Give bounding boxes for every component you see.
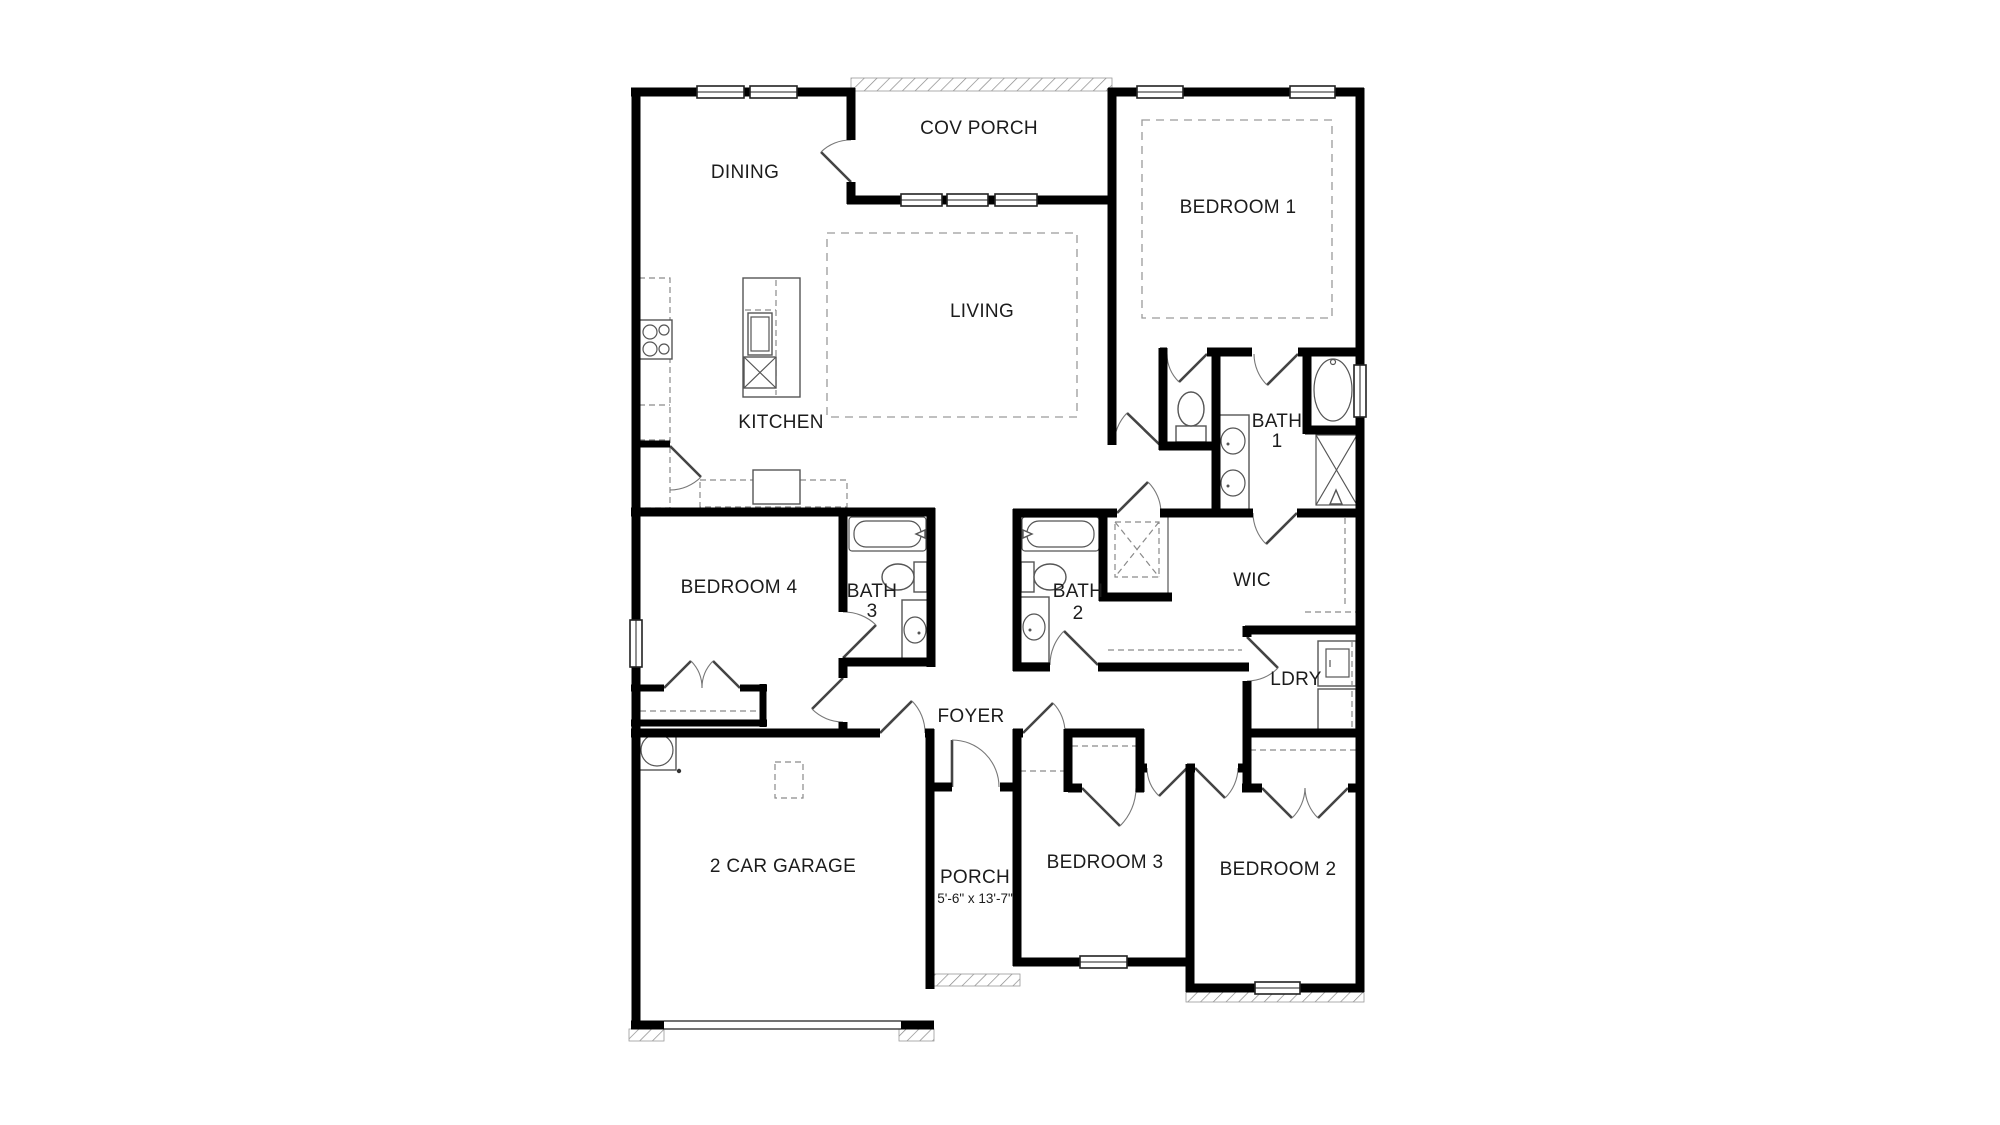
wall-bedroom3-closet <box>1068 729 1144 792</box>
room-label-dining: DINING <box>711 162 779 183</box>
window-bedroom4 <box>630 620 642 667</box>
sink-drain <box>1029 629 1032 632</box>
window-living-3 <box>995 194 1037 206</box>
room-label-bath3-line1: BATH <box>847 581 897 602</box>
door-water-closet <box>1167 354 1207 382</box>
door-pantry <box>670 446 701 490</box>
porch-dimensions: 5'-6" x 13'-7" <box>937 891 1013 906</box>
door-wic-shower <box>1117 482 1161 513</box>
room-label-bedroom1: BEDROOM 1 <box>1180 197 1297 218</box>
shower-head-icon <box>1330 490 1342 504</box>
door-bedroom3-closet <box>1082 788 1136 826</box>
toilet-tank-icon <box>1021 562 1034 592</box>
bath1-tub-basin <box>1314 359 1352 421</box>
door-bedroom2 <box>1195 768 1238 798</box>
window-bath1 <box>1354 365 1366 417</box>
garage-fixtures <box>638 730 901 1029</box>
window-bedroom2 <box>1255 982 1300 994</box>
wall-bedroom4-closet <box>631 684 767 727</box>
toilet-tank-icon <box>1176 426 1206 442</box>
floor-plan-canvas: DINING COV PORCH BEDROOM 1 LIVING KITCHE… <box>0 0 2000 1125</box>
door-bedroom4 <box>812 678 843 722</box>
laundry-fixtures <box>1318 641 1356 732</box>
room-label-bedroom3: BEDROOM 3 <box>1047 852 1164 873</box>
front-porch-slab-hatch <box>928 974 1020 986</box>
tub-faucet-icon <box>1331 360 1336 365</box>
window-living-2 <box>947 194 988 206</box>
door-porch-to-dining <box>821 140 851 182</box>
sink-drain <box>1227 443 1230 446</box>
room-label-bath3-line2: 3 <box>867 601 878 622</box>
door-wic <box>1253 513 1297 544</box>
sink-drain <box>918 632 921 635</box>
window-living-1 <box>901 194 942 206</box>
door-garage-entry <box>880 701 925 733</box>
room-label-bath1-line2: 1 <box>1272 431 1283 452</box>
room-label-kitchen: KITCHEN <box>738 412 824 433</box>
shower-x <box>1115 522 1159 577</box>
room-label-living: LIVING <box>950 301 1014 322</box>
washer-icon <box>1318 641 1356 686</box>
floor-drain-icon <box>677 769 681 773</box>
room-label-bath2-line2: 2 <box>1073 603 1084 624</box>
door-bedroom3-second <box>1147 768 1187 796</box>
bath3-vanity <box>902 600 929 664</box>
kitchen-sink-south <box>753 470 800 504</box>
cov-porch-roof-edge-hatch <box>851 78 1112 91</box>
door-bedroom4-closet-double <box>664 661 740 688</box>
sink-drain <box>1227 485 1230 488</box>
dryer-icon <box>1318 689 1356 732</box>
wic-shower <box>1115 517 1168 593</box>
room-label-ldry: LDRY <box>1270 669 1322 690</box>
garage-door-stub-right-hatch <box>899 1029 934 1041</box>
room-label-bath2-line1: BATH <box>1053 581 1103 602</box>
garage-attic-access <box>775 762 803 798</box>
door-bedroom1-to-bath1 <box>1254 354 1298 385</box>
window-bedroom3 <box>1080 956 1127 968</box>
room-label-cov-porch: COV PORCH <box>920 118 1038 139</box>
door-bedroom2-closet-double <box>1262 788 1348 818</box>
window-dining-2 <box>750 86 797 98</box>
room-label-garage: 2 CAR GARAGE <box>710 856 856 877</box>
living-ceiling-dashed-rect <box>827 233 1077 417</box>
kitchen-fixtures <box>639 278 847 508</box>
door-bedroom3 <box>1023 703 1065 733</box>
room-label-bedroom2: BEDROOM 2 <box>1220 859 1337 880</box>
window-bedroom1-2 <box>1290 86 1335 98</box>
door-living-to-hall <box>1114 413 1160 445</box>
bedroom1-ceiling-dashed-rect <box>1142 120 1332 318</box>
room-label-porch: PORCH <box>940 867 1010 888</box>
room-label-bath1-line1: BATH <box>1252 411 1302 432</box>
room-label-bedroom4: BEDROOM 4 <box>681 577 798 598</box>
toilet-tank-icon <box>914 562 927 592</box>
kitchen-counter-west <box>639 278 670 508</box>
bath2-tub-basin <box>1027 521 1094 547</box>
room-label-wic: WIC <box>1233 570 1271 591</box>
bath1-tub <box>1308 352 1358 428</box>
toilet-icon <box>1178 392 1204 426</box>
door-front-entry <box>952 740 999 787</box>
window-dining-1 <box>697 86 744 98</box>
floor-plan-svg: DINING COV PORCH BEDROOM 1 LIVING KITCHE… <box>0 0 2000 1125</box>
garage-door-stub-left-hatch <box>629 1029 664 1041</box>
door-bath2 <box>1050 631 1098 665</box>
room-label-foyer: FOYER <box>938 706 1005 727</box>
window-bedroom1-1 <box>1137 86 1183 98</box>
bath3-tub-basin <box>854 521 921 547</box>
